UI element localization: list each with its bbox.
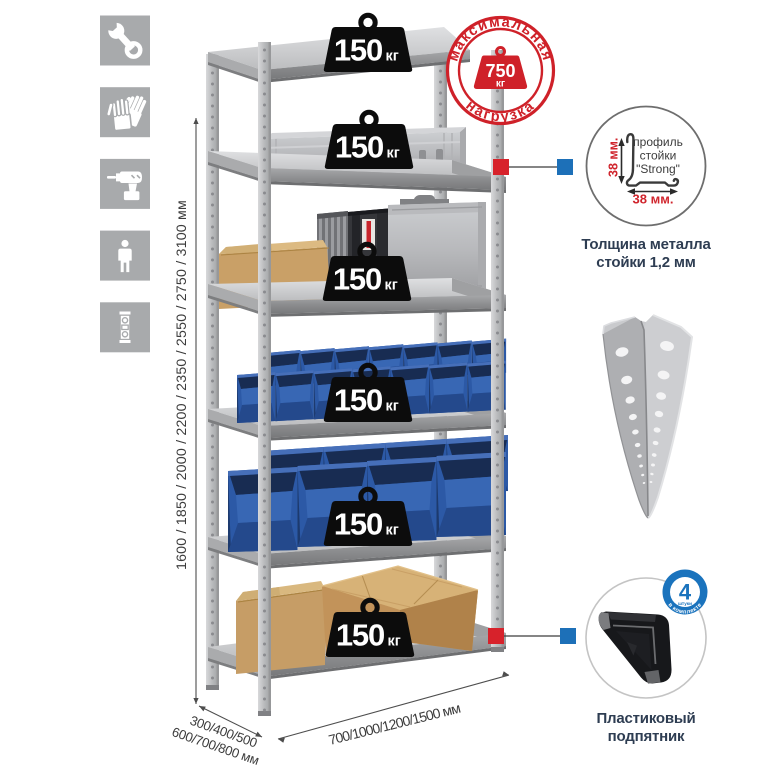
svg-text:150: 150: [336, 618, 384, 653]
svg-text:стойки 1,2 мм: стойки 1,2 мм: [596, 254, 695, 271]
svg-text:стойки: стойки: [640, 149, 677, 163]
svg-text:кг: кг: [385, 278, 398, 294]
svg-text:кг: кг: [386, 523, 399, 539]
svg-text:подпятник: подпятник: [608, 728, 685, 745]
svg-text:кг: кг: [388, 634, 401, 650]
svg-text:кг: кг: [386, 399, 399, 415]
svg-text:кг: кг: [496, 79, 505, 90]
svg-text:кг: кг: [387, 146, 400, 162]
svg-text:профиль: профиль: [633, 135, 683, 149]
svg-text:150: 150: [334, 383, 382, 418]
svg-text:"Strong": "Strong": [636, 162, 680, 176]
svg-text:кг: кг: [386, 49, 399, 65]
svg-text:150: 150: [333, 262, 381, 297]
svg-text:Пластиковый: Пластиковый: [596, 710, 695, 727]
svg-text:38 мм.: 38 мм.: [633, 192, 674, 207]
svg-text:1600 / 1850 / 2000 / 2200 / 23: 1600 / 1850 / 2000 / 2200 / 2350 / 2550 …: [174, 200, 190, 570]
svg-text:150: 150: [334, 33, 382, 68]
svg-text:150: 150: [334, 507, 382, 542]
svg-text:Толщина металла: Толщина металла: [581, 236, 711, 253]
svg-text:штуки: штуки: [678, 601, 692, 606]
svg-text:150: 150: [335, 130, 383, 165]
svg-text:38 мм.: 38 мм.: [607, 138, 621, 177]
